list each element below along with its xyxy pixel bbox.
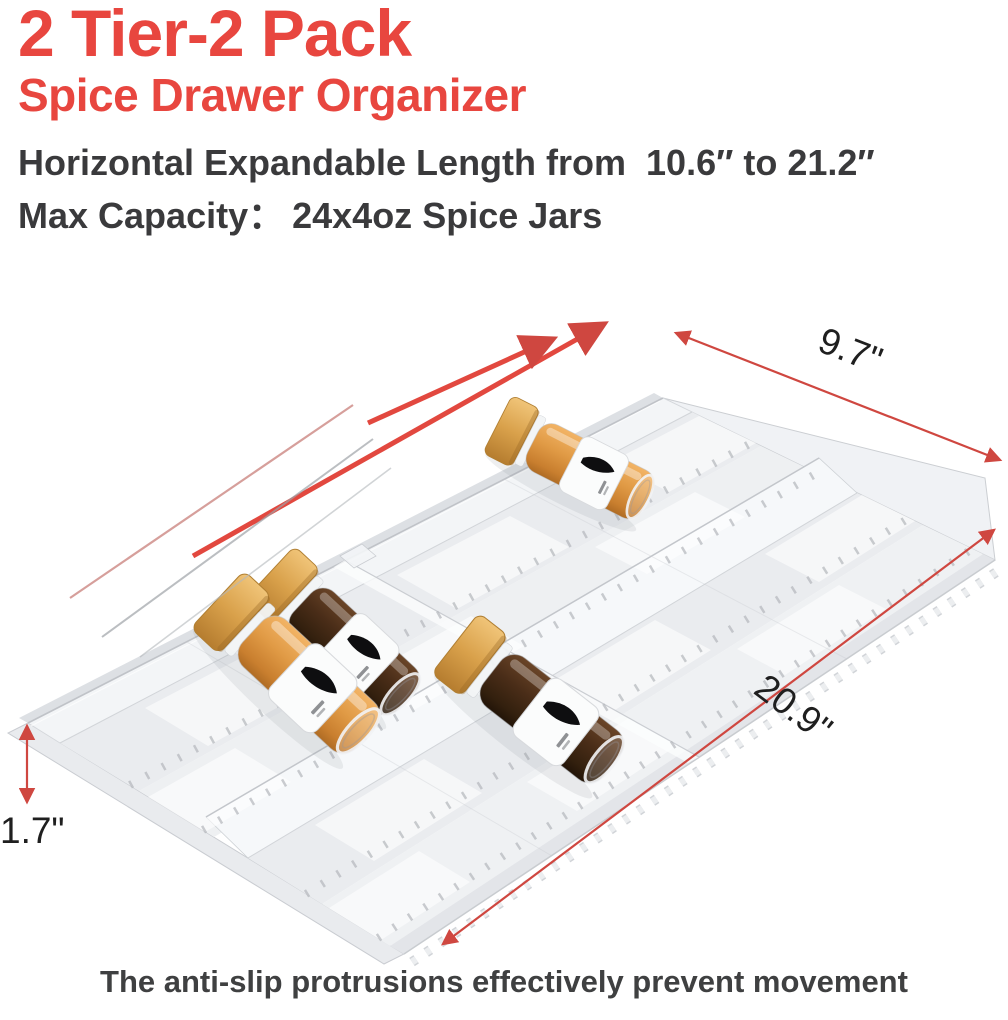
height-dimension-label: 1.7" — [0, 810, 65, 851]
footer-caption: The anti-slip protrusions effectively pr… — [0, 964, 1008, 1000]
width-dimension-label: 9.7" — [813, 320, 888, 381]
product-marketing-page: 2 Tier-2 Pack Spice Drawer Organizer Hor… — [0, 0, 1008, 1020]
product-illustration: 9.7" 20.9" 1.7" — [0, 0, 1008, 1020]
